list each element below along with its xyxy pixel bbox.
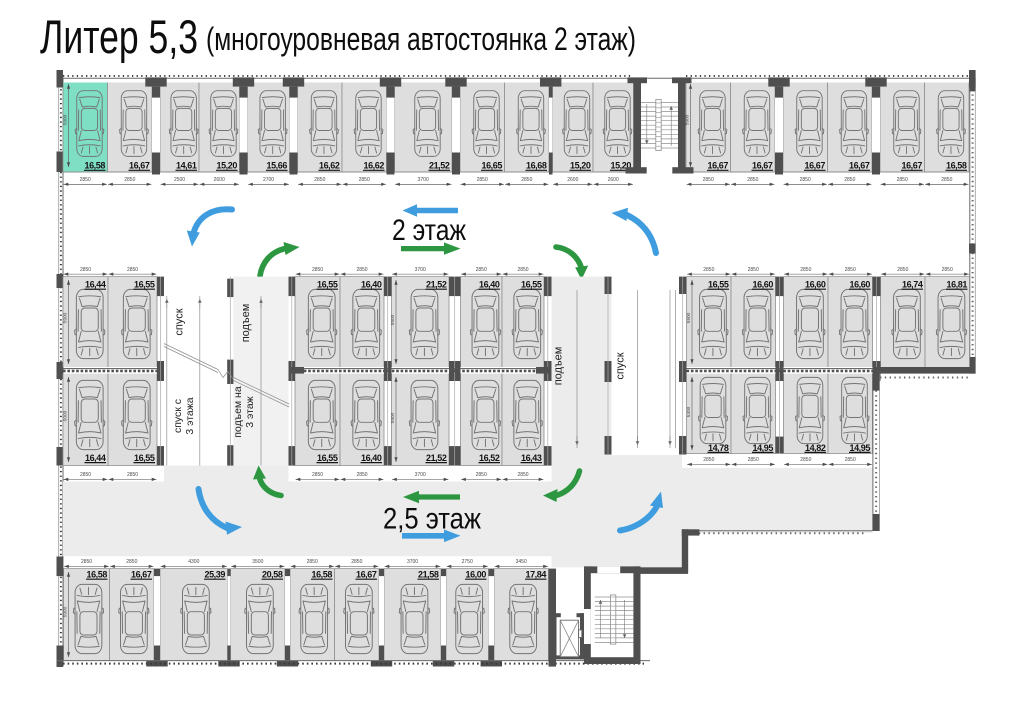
svg-text:2850: 2850 (359, 177, 370, 183)
svg-text:2850: 2850 (314, 177, 325, 183)
svg-text:2850: 2850 (845, 457, 856, 463)
svg-text:3700: 3700 (415, 472, 426, 478)
svg-text:16,40: 16,40 (361, 280, 382, 290)
svg-text:2850: 2850 (748, 267, 759, 273)
svg-text:3 этажа: 3 этажа (184, 397, 196, 434)
svg-text:5000: 5000 (62, 410, 68, 421)
svg-text:2850: 2850 (127, 472, 138, 478)
svg-text:16,55: 16,55 (134, 280, 155, 290)
svg-text:2850: 2850 (80, 177, 91, 183)
svg-text:2850: 2850 (800, 267, 811, 273)
svg-text:20,58: 20,58 (262, 570, 283, 580)
svg-text:подъем: подъем (553, 347, 565, 386)
svg-text:2850: 2850 (477, 177, 488, 183)
svg-text:2850: 2850 (897, 177, 908, 183)
svg-text:5900: 5900 (390, 314, 396, 325)
svg-text:2600: 2600 (214, 177, 225, 183)
svg-text:5900: 5900 (62, 312, 68, 323)
svg-text:16,00: 16,00 (465, 570, 486, 580)
svg-text:2850: 2850 (521, 177, 532, 183)
svg-text:15,20: 15,20 (216, 161, 237, 171)
svg-text:16,43: 16,43 (521, 453, 542, 463)
svg-text:3 этаж: 3 этаж (244, 396, 256, 427)
svg-text:2 этаж: 2 этаж (392, 214, 466, 247)
svg-text:16,67: 16,67 (849, 161, 870, 171)
svg-text:спуск: спуск (615, 352, 627, 379)
svg-text:25,39: 25,39 (204, 570, 225, 580)
svg-text:2850: 2850 (703, 177, 714, 183)
svg-text:2850: 2850 (703, 267, 714, 273)
svg-text:2850: 2850 (312, 267, 323, 273)
svg-text:2850: 2850 (942, 267, 953, 273)
svg-text:2850: 2850 (517, 267, 528, 273)
svg-text:3500: 3500 (252, 559, 263, 565)
svg-text:2850: 2850 (80, 267, 91, 273)
svg-text:16,67: 16,67 (804, 161, 825, 171)
svg-text:16,60: 16,60 (752, 280, 773, 290)
svg-text:2850: 2850 (356, 267, 367, 273)
svg-text:16,62: 16,62 (319, 161, 340, 171)
svg-text:Литер 5,3: Литер 5,3 (40, 10, 198, 63)
svg-text:3450: 3450 (516, 559, 527, 565)
svg-text:15,66: 15,66 (266, 161, 287, 171)
svg-text:2850: 2850 (845, 267, 856, 273)
svg-text:16,60: 16,60 (849, 280, 870, 290)
svg-text:16,58: 16,58 (84, 161, 105, 171)
svg-text:2600: 2600 (608, 177, 619, 183)
svg-text:2850: 2850 (844, 177, 855, 183)
svg-text:15,20: 15,20 (570, 161, 591, 171)
svg-text:2850: 2850 (897, 267, 908, 273)
svg-text:16,55: 16,55 (521, 280, 542, 290)
svg-text:14,78: 14,78 (708, 443, 729, 453)
svg-text:2850: 2850 (81, 559, 92, 565)
svg-text:21,52: 21,52 (426, 280, 447, 290)
svg-text:2850: 2850 (941, 177, 952, 183)
svg-text:14,61: 14,61 (176, 161, 197, 171)
svg-text:2850: 2850 (747, 177, 758, 183)
svg-text:16,58: 16,58 (86, 570, 107, 580)
svg-text:16,40: 16,40 (479, 280, 500, 290)
svg-text:16,58: 16,58 (311, 570, 332, 580)
svg-text:16,67: 16,67 (707, 161, 728, 171)
svg-text:21,52: 21,52 (426, 453, 447, 463)
svg-text:5300: 5300 (686, 406, 692, 417)
svg-text:2850: 2850 (748, 457, 759, 463)
svg-text:2850: 2850 (124, 177, 135, 183)
svg-text:16,55: 16,55 (317, 453, 338, 463)
svg-text:14,95: 14,95 (752, 443, 773, 453)
svg-text:16,44: 16,44 (85, 280, 106, 290)
svg-text:подъем: подъем (240, 304, 252, 343)
svg-text:16,67: 16,67 (356, 570, 377, 580)
svg-text:2850: 2850 (517, 472, 528, 478)
svg-text:2700: 2700 (263, 177, 274, 183)
svg-text:17,84: 17,84 (525, 570, 546, 580)
svg-text:2850: 2850 (800, 457, 811, 463)
svg-text:2850: 2850 (476, 472, 487, 478)
svg-text:5900: 5900 (390, 412, 396, 423)
svg-text:16,44: 16,44 (85, 453, 106, 463)
svg-text:14,82: 14,82 (805, 443, 826, 453)
svg-text:5900: 5900 (62, 606, 68, 617)
svg-text:2850: 2850 (703, 457, 714, 463)
svg-text:(многоуровневая автостоянка 2: (многоуровневая автостоянка 2 этаж) (206, 21, 636, 57)
svg-text:2850: 2850 (127, 267, 138, 273)
svg-text:3700: 3700 (418, 177, 429, 183)
svg-text:5900: 5900 (686, 312, 692, 323)
svg-text:2850: 2850 (307, 559, 318, 565)
svg-text:16,58: 16,58 (946, 161, 967, 171)
svg-text:2850: 2850 (356, 472, 367, 478)
svg-text:16,67: 16,67 (131, 570, 152, 580)
svg-text:16,55: 16,55 (134, 453, 155, 463)
svg-text:16,74: 16,74 (902, 280, 923, 290)
svg-text:21,52: 21,52 (429, 161, 450, 171)
svg-text:2850: 2850 (80, 472, 91, 478)
svg-text:16,60: 16,60 (805, 280, 826, 290)
svg-text:16,55: 16,55 (708, 280, 729, 290)
svg-text:21,58: 21,58 (418, 570, 439, 580)
svg-text:2850: 2850 (476, 267, 487, 273)
svg-text:3700: 3700 (407, 559, 418, 565)
svg-text:16,68: 16,68 (526, 161, 547, 171)
svg-text:2850: 2850 (351, 559, 362, 565)
svg-text:16,67: 16,67 (752, 161, 773, 171)
svg-text:3700: 3700 (415, 267, 426, 273)
svg-text:2750: 2750 (462, 559, 473, 565)
svg-text:2,5 этаж: 2,5 этаж (383, 503, 481, 536)
svg-text:16,52: 16,52 (479, 453, 500, 463)
svg-text:2850: 2850 (800, 177, 811, 183)
svg-text:5900: 5900 (62, 114, 68, 125)
svg-text:2850: 2850 (312, 472, 323, 478)
svg-text:подъем на: подъем на (232, 386, 244, 438)
svg-text:16,81: 16,81 (946, 280, 967, 290)
svg-text:14,95: 14,95 (849, 443, 870, 453)
svg-text:2500: 2500 (174, 177, 185, 183)
svg-text:2850: 2850 (126, 559, 137, 565)
svg-text:16,55: 16,55 (317, 280, 338, 290)
svg-text:16,62: 16,62 (363, 161, 384, 171)
svg-text:спуск: спуск (174, 308, 186, 335)
svg-text:16,40: 16,40 (361, 453, 382, 463)
svg-text:16,67: 16,67 (901, 161, 922, 171)
svg-text:2600: 2600 (567, 177, 578, 183)
svg-text:4300: 4300 (188, 559, 199, 565)
svg-text:16,67: 16,67 (129, 161, 150, 171)
svg-text:спуск с: спуск с (172, 399, 184, 433)
svg-text:16,65: 16,65 (481, 161, 502, 171)
